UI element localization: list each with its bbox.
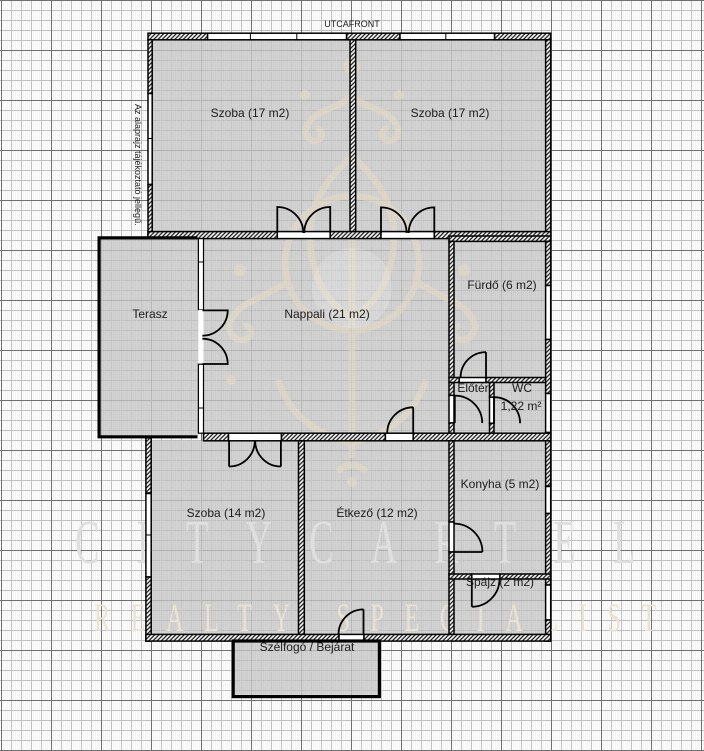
svg-text:Spájz (2 m2): Spájz (2 m2) xyxy=(466,575,534,589)
svg-text:WC: WC xyxy=(512,381,532,395)
svg-text:Az alaprajz tájékoztató jelleg: Az alaprajz tájékoztató jellegű. xyxy=(133,104,143,226)
svg-text:Szélfogó / Bejárat: Szélfogó / Bejárat xyxy=(260,640,355,654)
svg-text:Fürdő (6 m2): Fürdő (6 m2) xyxy=(467,278,536,292)
svg-text:Szoba (17 m2): Szoba (17 m2) xyxy=(211,106,290,120)
svg-text:Étkező (12 m2): Étkező (12 m2) xyxy=(336,505,417,520)
svg-text:UTCAFRONT: UTCAFRONT xyxy=(324,19,380,29)
svg-text:Nappali (21 m2): Nappali (21 m2) xyxy=(284,307,369,321)
svg-text:Előtér: Előtér xyxy=(457,381,488,395)
svg-text:Szoba (14 m2): Szoba (14 m2) xyxy=(187,506,266,520)
svg-text:1,22 m²: 1,22 m² xyxy=(501,399,542,413)
svg-text:Konyha (5 m2): Konyha (5 m2) xyxy=(461,477,540,491)
svg-text:Terasz: Terasz xyxy=(132,307,167,321)
svg-text:Szoba (17 m2): Szoba (17 m2) xyxy=(411,106,490,120)
